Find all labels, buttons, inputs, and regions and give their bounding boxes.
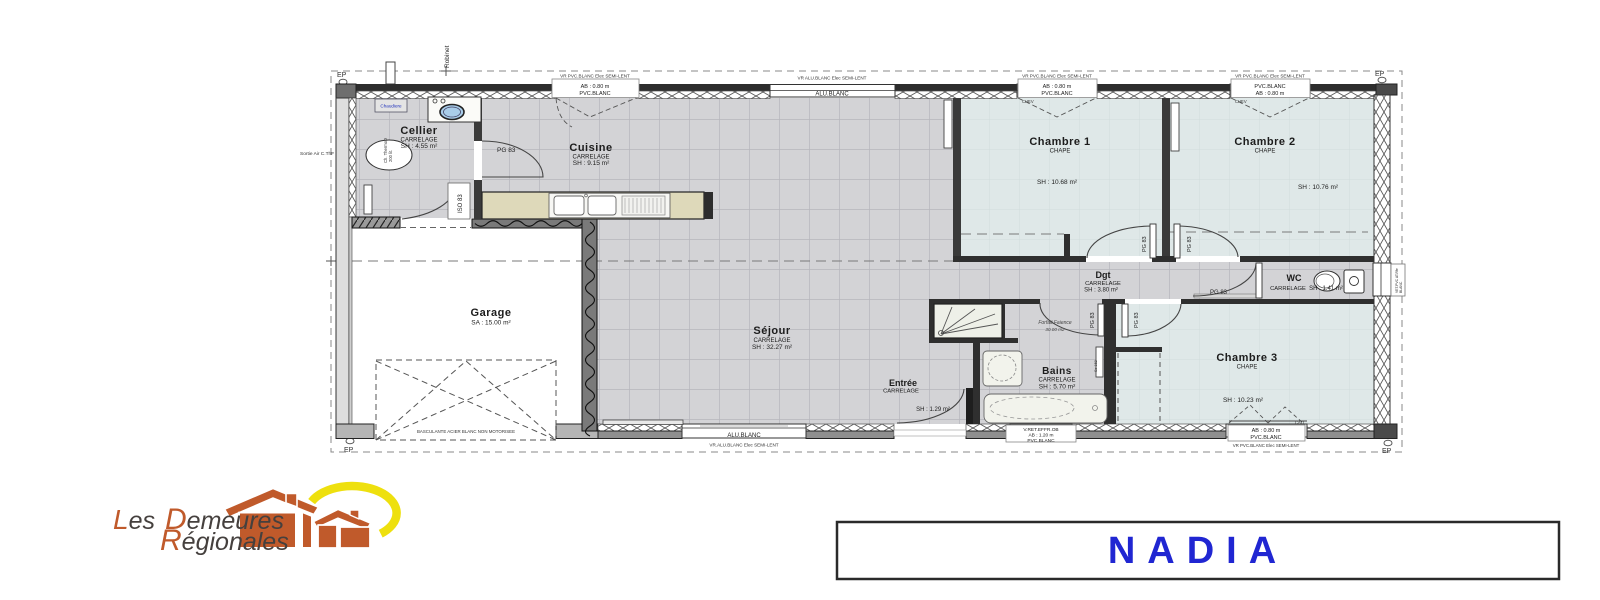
svg-text:PG 83: PG 83 xyxy=(1142,236,1148,252)
svg-text:EP: EP xyxy=(337,72,347,79)
svg-text:V.RET.EFFR.OB: V.RET.EFFR.OB xyxy=(1023,427,1058,433)
svg-text:VR PVC.BLANC Elec SEMI-LENT: VR PVC.BLANC Elec SEMI-LENT xyxy=(1233,443,1300,448)
svg-text:Régionales: Régionales xyxy=(160,524,289,557)
svg-text:Les: Les xyxy=(113,504,155,535)
svg-text:CAO: CAO xyxy=(1295,420,1305,425)
svg-text:AB : 0.80 m: AB : 0.80 m xyxy=(1256,91,1285,97)
svg-text:VR ALU.BLANC Elec SEMI-LENT: VR ALU.BLANC Elec SEMI-LENT xyxy=(798,76,867,81)
svg-text:30.00 m2: 30.00 m2 xyxy=(1045,327,1065,332)
svg-text:CHAPE: CHAPE xyxy=(1237,365,1258,371)
svg-text:VR PVC.BLANC Elec SEMI-LENT: VR PVC.BLANC Elec SEMI-LENT xyxy=(560,74,630,79)
svg-text:VR PVC.BLANC Elec SEMI-LENT: VR PVC.BLANC Elec SEMI-LENT xyxy=(1022,74,1092,79)
svg-text:AB : 1.20 m: AB : 1.20 m xyxy=(1028,433,1053,439)
svg-text:BLANC: BLANC xyxy=(1399,281,1403,293)
svg-text:SH : 10.23 m²: SH : 10.23 m² xyxy=(1223,397,1264,404)
svg-text:EP: EP xyxy=(344,447,354,454)
svg-text:Forfait Faience: Forfait Faience xyxy=(1038,320,1072,326)
svg-text:Cellier: Cellier xyxy=(400,125,437,137)
svg-text:VR.ALU.BLANC Elec SEMI-LENT: VR.ALU.BLANC Elec SEMI-LENT xyxy=(709,443,778,448)
svg-text:Robinet: Robinet xyxy=(444,45,451,68)
svg-text:SH : 10.68 m²: SH : 10.68 m² xyxy=(1037,179,1078,186)
svg-text:CARRELAGE: CARRELAGE xyxy=(883,389,919,395)
svg-text:CHEV: CHEV xyxy=(1235,99,1247,104)
svg-text:SH : 1.41 m²: SH : 1.41 m² xyxy=(1309,286,1343,292)
svg-text:Entrée: Entrée xyxy=(889,378,917,388)
svg-text:SH : 3.80 m²: SH : 3.80 m² xyxy=(1084,288,1118,294)
svg-text:CARRELAGE: CARRELAGE xyxy=(1270,286,1306,292)
svg-text:SH : 5.70 m²: SH : 5.70 m² xyxy=(1039,384,1076,391)
svg-text:PG 83: PG 83 xyxy=(1187,236,1193,252)
svg-text:PVC.BLANC: PVC.BLANC xyxy=(1254,84,1285,90)
svg-text:Sc 152: Sc 152 xyxy=(1094,360,1098,372)
svg-text:SH : 10.76 m²: SH : 10.76 m² xyxy=(1298,184,1339,191)
svg-text:AB : 0.80 m: AB : 0.80 m xyxy=(581,84,610,90)
svg-text:BASCULANTE ACIER BLANC NON MOT: BASCULANTE ACIER BLANC NON MOTORISEE xyxy=(417,429,515,434)
svg-text:CHAPE: CHAPE xyxy=(1050,149,1071,155)
svg-text:CHAPE: CHAPE xyxy=(1255,149,1276,155)
svg-text:Séjour: Séjour xyxy=(753,325,790,337)
svg-text:PVC.BLANC: PVC.BLANC xyxy=(1027,438,1055,444)
svg-text:SH : 9.15 m²: SH : 9.15 m² xyxy=(573,160,610,167)
svg-text:PG 83: PG 83 xyxy=(1090,312,1096,328)
svg-text:CARRELAGE: CARRELAGE xyxy=(1085,281,1121,287)
svg-text:SH : 4.55 m²: SH : 4.55 m² xyxy=(401,143,438,150)
svg-text:Bains: Bains xyxy=(1042,366,1072,377)
svg-text:ALU.BLANC: ALU.BLANC xyxy=(727,433,761,439)
svg-text:PVC.BLANC: PVC.BLANC xyxy=(1041,91,1072,97)
svg-text:AB : 0.80 m: AB : 0.80 m xyxy=(1252,428,1281,434)
svg-text:ISO 83: ISO 83 xyxy=(458,194,464,213)
svg-text:NADIA: NADIA xyxy=(1108,530,1288,572)
svg-text:SH : 1.29 m²: SH : 1.29 m² xyxy=(916,407,950,413)
svg-text:PG 83: PG 83 xyxy=(1134,312,1140,328)
svg-text:Cuisine: Cuisine xyxy=(569,142,612,154)
svg-text:CHEV: CHEV xyxy=(1022,99,1034,104)
svg-text:PG 83: PG 83 xyxy=(1210,290,1228,296)
svg-text:Chambre 3: Chambre 3 xyxy=(1216,352,1277,364)
svg-text:ALU.BLANC: ALU.BLANC xyxy=(815,92,849,98)
svg-text:SH : 32.27 m²: SH : 32.27 m² xyxy=(752,344,793,351)
svg-text:Chambre 1: Chambre 1 xyxy=(1029,136,1090,148)
svg-text:Dgt: Dgt xyxy=(1096,270,1111,280)
svg-text:Sortie Air C.ThF: Sortie Air C.ThF xyxy=(300,151,334,157)
svg-text:PVC.BLANC: PVC.BLANC xyxy=(1250,435,1281,441)
svg-text:EP: EP xyxy=(1382,448,1392,455)
svg-text:Chaudiere: Chaudiere xyxy=(380,104,402,109)
svg-text:AB : 0.80 m: AB : 0.80 m xyxy=(1043,84,1072,90)
svg-text:WC: WC xyxy=(1287,273,1302,283)
svg-text:SA : 15.00 m²: SA : 15.00 m² xyxy=(471,320,511,327)
svg-text:Chambre 2: Chambre 2 xyxy=(1234,136,1295,148)
svg-text:PG 83: PG 83 xyxy=(497,147,516,154)
svg-text:PVC.BLANC: PVC.BLANC xyxy=(579,91,610,97)
svg-text:Garage: Garage xyxy=(471,307,512,319)
svg-text:200 lit.: 200 lit. xyxy=(388,150,393,162)
svg-text:VR PVC.BLANC Elec SEMI-LENT: VR PVC.BLANC Elec SEMI-LENT xyxy=(1235,74,1305,79)
